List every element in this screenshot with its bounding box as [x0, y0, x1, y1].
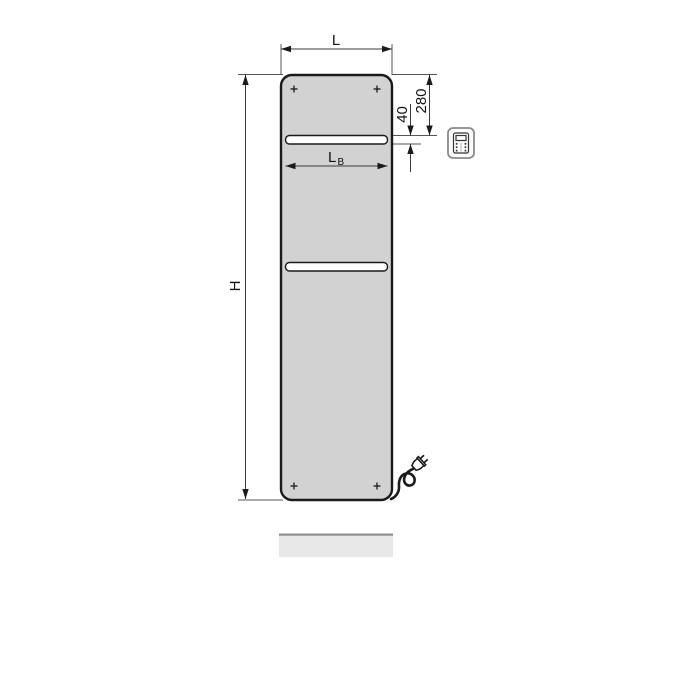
- dimension-width: L: [281, 32, 392, 52]
- dimension-height: H: [227, 75, 249, 499]
- arrow-left-icon: [281, 46, 291, 52]
- dimension-slot-height: 40: [394, 104, 414, 172]
- arrow-up-icon: [426, 75, 432, 85]
- bar-width-dim-label-sub: B: [338, 157, 345, 168]
- arrow-down-icon: [426, 126, 432, 136]
- height-dim-label: H: [227, 281, 244, 292]
- slot-height-dim-label: 40: [394, 106, 411, 123]
- towel-bar-slot-upper: [286, 136, 388, 145]
- arrow-down-icon: [242, 489, 248, 499]
- arrow-up-icon: [242, 75, 248, 85]
- electric-control-unit-icon: [448, 128, 474, 158]
- power-cable-assembly: [391, 453, 430, 499]
- arrow-right-icon: [382, 46, 392, 52]
- width-dim-label: L: [332, 32, 340, 49]
- top-offset-dim-label: 280: [413, 88, 430, 113]
- power-cable: [391, 468, 415, 499]
- dimension-top-offset: 280: [413, 75, 433, 136]
- technical-drawing-page: L H 280: [0, 0, 700, 700]
- arrow-up-icon: [407, 144, 413, 154]
- arrow-down-icon: [407, 126, 413, 136]
- drawing-canvas: L H 280: [0, 0, 700, 700]
- towel-bar-slot-lower: [286, 263, 388, 272]
- bar-width-dim-label: L: [328, 149, 336, 166]
- floor-reflection: [279, 534, 393, 558]
